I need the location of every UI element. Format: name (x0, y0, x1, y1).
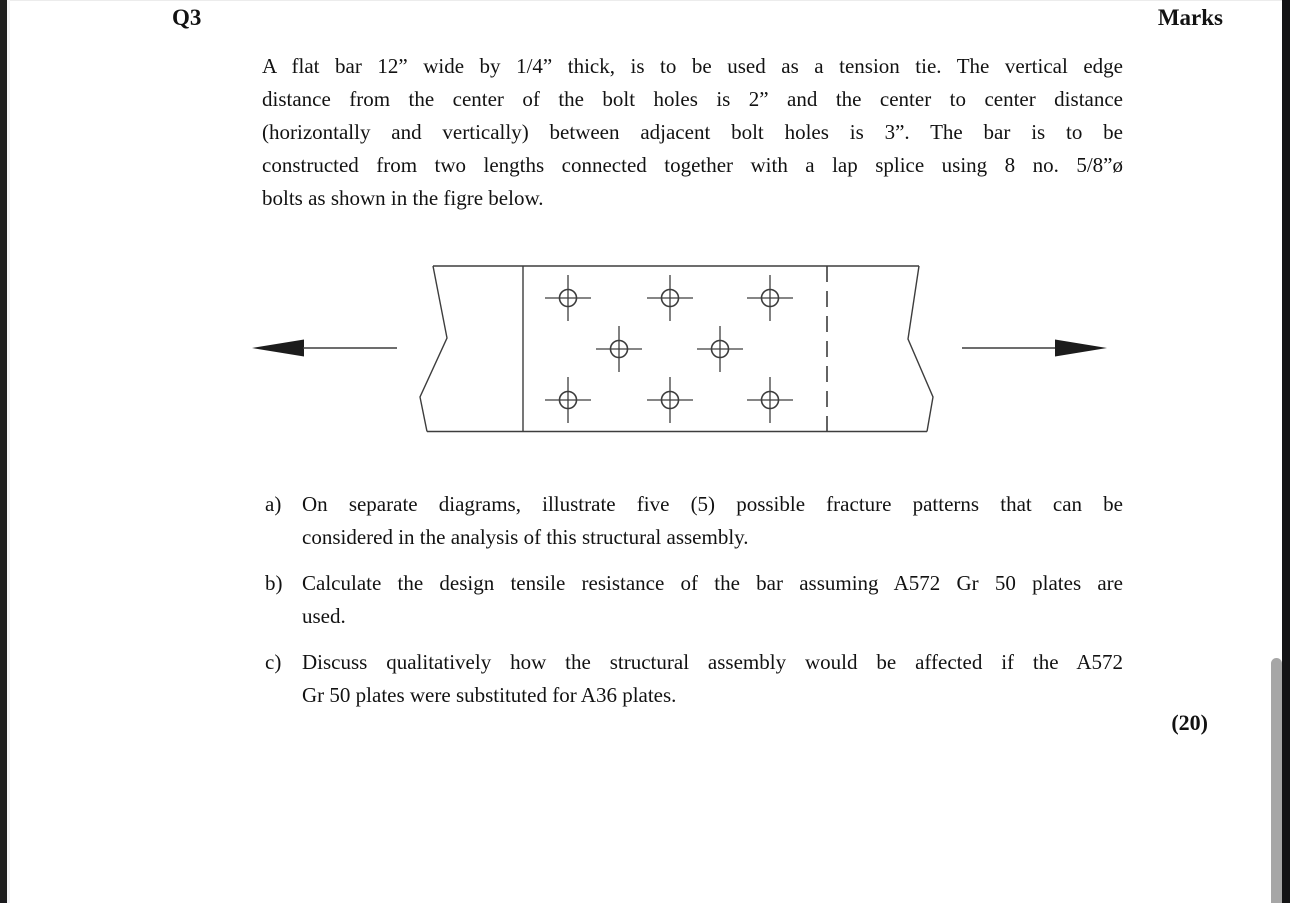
item-label: a) (265, 488, 302, 554)
right-window-edge (1282, 0, 1290, 903)
document-page: Q3 Marks A flat bar 12” wide by 1/4” thi… (0, 0, 1290, 903)
plate-outline (420, 266, 933, 432)
item-line: Discuss qualitatively how the structural… (302, 646, 1123, 679)
bolt-hole (545, 275, 591, 321)
right-break-line (908, 266, 933, 432)
bolt-hole (545, 377, 591, 423)
lap-splice-figure (240, 255, 1120, 445)
item-line: Gr 50 plates were substituted for A36 pl… (302, 679, 1123, 712)
item-line: Calculate the design tensile resistance … (302, 567, 1123, 600)
item-line: used. (302, 600, 1123, 633)
bolt-hole (647, 377, 693, 423)
item-line: On separate diagrams, illustrate five (5… (302, 488, 1123, 521)
vertical-scrollbar-thumb[interactable] (1271, 658, 1282, 903)
question-number: Q3 (172, 5, 201, 31)
intro-line: A flat bar 12” wide by 1/4” thick, is to… (262, 50, 1123, 83)
page-top-edge (10, 0, 1290, 1)
item-label: b) (265, 567, 302, 633)
left-break-line (420, 266, 447, 432)
left-window-edge (0, 0, 7, 903)
bolt-hole (747, 275, 793, 321)
sub-question-b: b) Calculate the design tensile resistan… (265, 567, 1123, 633)
intro-line: distance from the center of the bolt hol… (262, 83, 1123, 116)
marks-header: Marks (1158, 5, 1223, 31)
bolt-hole (596, 326, 642, 372)
item-line: considered in the analysis of this struc… (302, 521, 1123, 554)
intro-line: constructed from two lengths connected t… (262, 149, 1123, 182)
marks-total: (20) (1171, 710, 1208, 736)
page-left-edge-line (7, 0, 10, 903)
question-intro: A flat bar 12” wide by 1/4” thick, is to… (262, 50, 1123, 215)
intro-line: bolts as shown in the figre below. (262, 182, 1123, 215)
bolt-hole (747, 377, 793, 423)
intro-line: (horizontally and vertically) between ad… (262, 116, 1123, 149)
sub-question-a: a) On separate diagrams, illustrate five… (265, 488, 1123, 554)
item-label: c) (265, 646, 302, 712)
bolt-hole (647, 275, 693, 321)
left-force-arrow (252, 340, 397, 357)
right-force-arrow (962, 340, 1107, 357)
bolt-holes-group (545, 275, 793, 423)
sub-question-c: c) Discuss qualitatively how the structu… (265, 646, 1123, 712)
bolt-hole (697, 326, 743, 372)
